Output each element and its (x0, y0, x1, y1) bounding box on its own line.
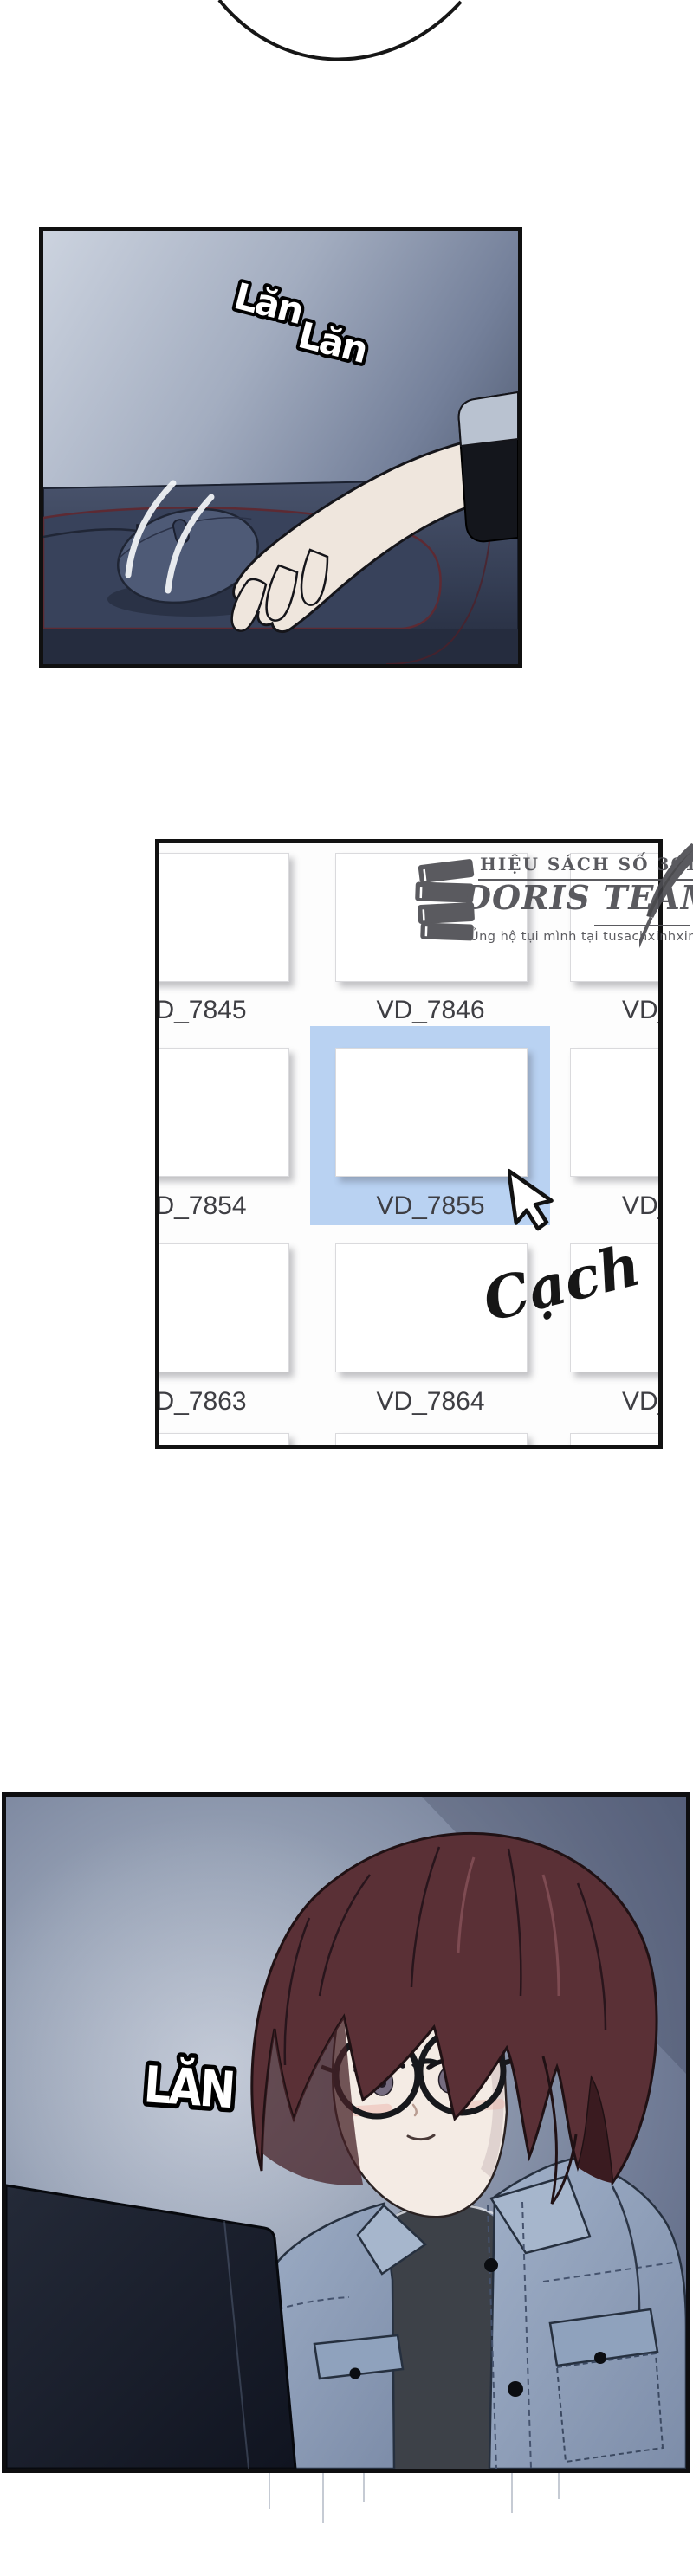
file-thumbnail[interactable] (335, 1433, 528, 1449)
panel-character-at-laptop: LĂN (2, 1792, 690, 2473)
comic-page: Lăn Lăn VD_7845 VD_7846 VD_ VD_7854 VD_7… (0, 0, 693, 2576)
laptop-screen (6, 2185, 295, 2469)
svg-text:Cạch: Cạch (476, 1230, 647, 1334)
file-thumbnail[interactable] (570, 1433, 663, 1449)
file-thumbnail[interactable] (155, 1243, 289, 1372)
panel1-art: Lăn Lăn (43, 231, 518, 664)
file-thumbnail[interactable] (155, 1048, 289, 1177)
motion-line (269, 2473, 270, 2509)
motion-line (322, 2473, 324, 2523)
desk-front-edge (43, 629, 518, 664)
file-label: VD_ (570, 1386, 663, 1417)
file-label: VD_ (570, 995, 663, 1026)
panel3-art: LĂN (6, 1797, 686, 2469)
file-label: VD_7854 (155, 1191, 288, 1222)
speech-bubble-arc (208, 0, 476, 66)
file-label: VD_7845 (155, 995, 288, 1026)
motion-line (558, 2473, 560, 2499)
file-thumbnail[interactable] (155, 853, 289, 982)
file-label: VD_7864 (335, 1386, 526, 1417)
panel-mouse-scrolling: Lăn Lăn (39, 227, 522, 668)
motion-line (511, 2473, 513, 2513)
file-label: VD_ (570, 1191, 663, 1222)
feather-quill-icon (639, 838, 693, 961)
motion-line (363, 2473, 365, 2502)
file-label: VD_7863 (155, 1386, 288, 1417)
file-thumbnail[interactable] (570, 1048, 663, 1177)
file-label-selected: VD_7855 (335, 1191, 526, 1222)
translator-watermark: HIỆU SÁCH SỐ 3011 DORIS TEAM Ủng hộ tụi … (412, 843, 693, 961)
file-thumbnail-selected[interactable] (335, 1048, 528, 1177)
file-thumbnail[interactable] (155, 1433, 289, 1449)
sfx-scroll-big: LĂN (142, 2055, 236, 2120)
file-label: VD_7846 (335, 995, 526, 1026)
sfx-click: Cạch (472, 1219, 663, 1349)
